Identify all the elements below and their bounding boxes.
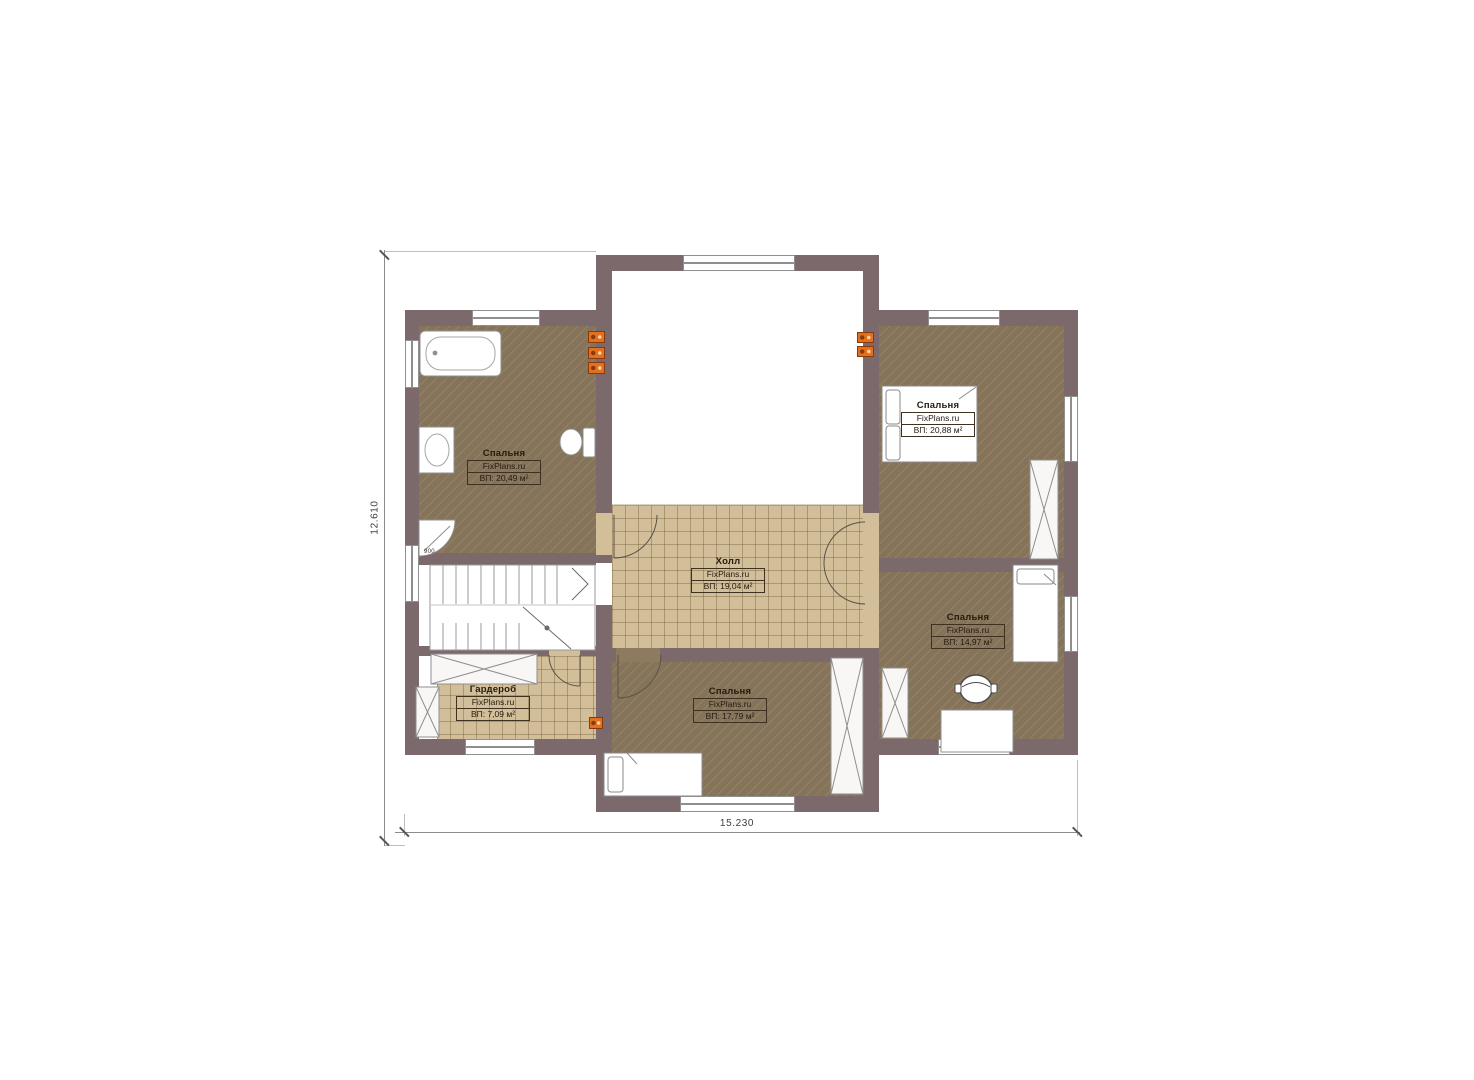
window [928,310,1000,326]
extension-line [1077,760,1078,836]
room-area: ВП: 19,04 м² [691,581,765,593]
wall-bath-stairs [419,553,596,565]
watermark: FixPlans.ru [467,460,541,473]
room-name: Спальня [467,448,541,459]
window [1064,396,1078,462]
vent-marker [589,717,603,729]
room-area: ВП: 20,88 м² [901,425,975,437]
dimension-height-label: 12.610 [370,488,381,548]
vent-marker [857,346,874,357]
room-area: ВП: 14,97 м² [931,637,1005,649]
room-area: ВП: 7,09 м² [456,709,530,721]
floor-bedroom-left [419,326,596,553]
window [465,739,535,755]
room-area: ВП: 20,49 м² [467,473,541,485]
vent-marker [857,332,874,343]
room-label-wardrobe: Гардероб FixPlans.ru ВП: 7,09 м² [456,684,530,721]
room-area: ВП: 17,79 м² [693,711,767,723]
dimension-line-horizontal [395,832,1080,833]
opening-bedroom-bottom-center [616,648,660,662]
opening-stairs-hall [596,563,612,605]
watermark: FixPlans.ru [693,698,767,711]
floor-plan-canvas: Спальня FixPlans.ru ВП: 20,49 м² Холл Fi… [0,0,1474,1080]
shower-size-note: 900 [424,549,435,555]
watermark: FixPlans.ru [901,412,975,425]
window [680,796,795,812]
room-label-bedroom-left: Спальня FixPlans.ru ВП: 20,49 м² [467,448,541,485]
dimension-width-label: 15.230 [697,818,777,829]
floor-bedroom-bottom-right [879,572,1064,739]
room-name: Спальня [901,400,975,411]
vent-marker [588,347,605,359]
wall-right-wing-right [1064,310,1078,755]
room-name: Гардероб [456,684,530,695]
cabinet [416,687,439,737]
opening-hall-right [863,513,879,648]
room-name: Спальня [693,686,767,697]
room-name: Спальня [931,612,1005,623]
window [405,340,419,388]
staircase [430,565,595,650]
extension-line [384,251,596,252]
opening-wardrobe-door [549,646,580,656]
wall-stairs-wardrobe [419,646,549,656]
window [683,255,795,271]
room-label-bedroom-bottom-right: Спальня FixPlans.ru ВП: 14,97 м² [931,612,1005,649]
room-label-hall: Холл FixPlans.ru ВП: 19,04 м² [691,556,765,593]
window [405,545,419,602]
stair-treads-upper [443,565,557,604]
room-name: Холл [691,556,765,567]
floor-bedroom-bottom-center [612,662,863,796]
room-label-bedroom-top-right: Спальня FixPlans.ru ВП: 20,88 м² [901,400,975,437]
window [1064,596,1078,652]
watermark: FixPlans.ru [456,696,530,709]
watermark: FixPlans.ru [691,568,765,581]
stair-break-line [523,607,571,649]
stair-direction-arrow [572,568,588,600]
room-label-bedroom-bottom-center: Спальня FixPlans.ru ВП: 17,79 м² [693,686,767,723]
vent-marker [588,362,605,374]
wall-wardrobe-stub [580,646,596,656]
floor-bedroom-top-right [879,326,1064,558]
opening-bedroomleft-hall [596,513,612,555]
window [938,739,1010,755]
dimension-line-vertical [384,250,385,846]
watermark: FixPlans.ru [931,624,1005,637]
vent-marker [588,331,605,343]
wall-right-wing-mid [879,558,1064,572]
window [472,310,540,326]
